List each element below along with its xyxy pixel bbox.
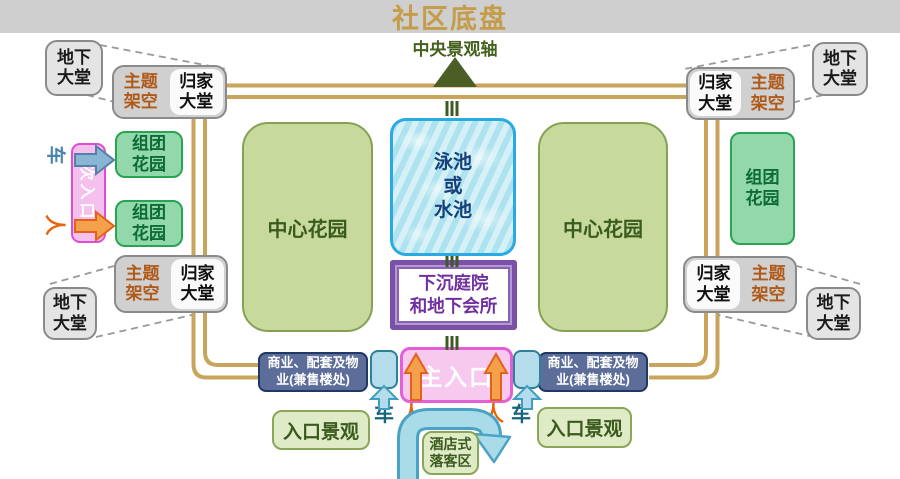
title-bar: 社区底盘 [0,0,900,33]
car-marker-side: 车 [46,146,65,168]
home-lobby-label: 归家 大堂 [170,69,224,115]
lobby-combo-top-right: 归家 大堂 主题 架空 [686,67,795,120]
commerce-box-left: 商业、配套及物 业(兼售楼处) [258,352,368,392]
theme-stilt-label: 主题 架空 [742,258,795,311]
car-drop-pad-right [513,350,541,389]
secondary-entrance: 次入口 [71,143,106,243]
cluster-garden-left-2: 组团 花园 [115,200,183,247]
home-lobby-label: 归家 大堂 [687,260,740,309]
main-entrance: 主入口 [400,347,513,403]
central-garden-right: 中心花园 [538,122,668,332]
home-lobby-label: 归家 大堂 [690,71,741,116]
pool-area: 泳池 或 水池 [390,118,516,256]
cluster-garden-left-1: 组团 花园 [115,131,183,178]
entrance-landscape-left: 入口景观 [272,410,370,450]
home-lobby-label: 归家 大堂 [171,259,224,309]
theme-stilt-label: 主题 架空 [114,67,168,117]
person-marker-side: 人 [44,215,65,237]
sunken-courtyard-label: 下沉庭院 和地下会所 [397,267,510,323]
underground-lobby-bottom-right: 地下 大堂 [806,287,861,340]
central-axis-label: 中央景观轴 [370,36,540,58]
commerce-box-right: 商业、配套及物 业(兼售楼处) [538,352,648,392]
person-marker-bottom-left: 人 [401,404,423,425]
hotel-dropoff-zone: 酒店式 落客区 [422,431,479,475]
community-base-diagram: 社区底盘 中央景观轴 地下 大堂 地下 大堂 地下 大堂 地下 大堂 主题 架空… [0,0,900,479]
theme-stilt-label: 主题 架空 [116,257,169,311]
theme-stilt-label: 主题 架空 [743,69,794,118]
lobby-combo-bottom-left: 主题 架空 归家 大堂 [114,255,228,313]
underground-lobby-top-left: 地下 大堂 [45,40,103,96]
car-marker-bottom-right: 车 [511,405,533,425]
entrance-landscape-right: 入口景观 [537,407,632,448]
cluster-garden-right: 组团 花园 [730,132,795,245]
secondary-entrance-label: 次入口 [77,164,101,221]
page-title: 社区底盘 [392,0,508,36]
underground-lobby-bottom-left: 地下 大堂 [43,287,97,340]
lobby-combo-top-left: 主题 架空 归家 大堂 [112,65,227,119]
car-drop-pad-left [370,350,398,389]
central-garden-left: 中心花园 [242,122,373,332]
car-marker-bottom-left: 车 [374,405,396,425]
person-marker-bottom-right: 人 [483,404,505,425]
lobby-combo-bottom-right: 归家 大堂 主题 架空 [683,256,797,313]
underground-lobby-top-right: 地下 大堂 [812,42,868,96]
